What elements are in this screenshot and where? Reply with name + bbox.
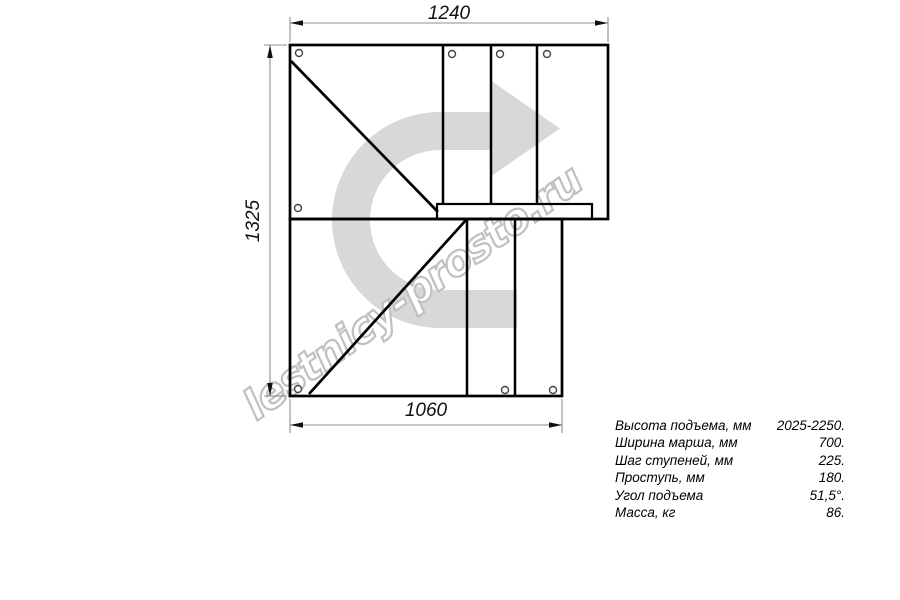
- mounting-holes: [295, 50, 557, 394]
- arrowhead: [290, 422, 303, 427]
- staircase-drawing-canvas: lestnicy-prosto.ru: [0, 0, 900, 600]
- arrowhead: [290, 20, 303, 25]
- spec-value: 225.: [819, 452, 845, 469]
- spec-row-mass: Масса, кг 86.: [615, 504, 845, 521]
- spec-value: 51,5°.: [810, 487, 845, 504]
- staircase-plan-outline: [290, 45, 608, 396]
- dimension-label-left: 1325: [243, 175, 265, 267]
- spec-value: 86.: [826, 504, 845, 521]
- spec-label: Шаг ступеней, мм: [615, 452, 733, 469]
- arrowhead: [595, 20, 608, 25]
- arrowhead: [267, 383, 273, 396]
- spec-label: Проступь, мм: [615, 469, 705, 486]
- spec-value: 180.: [819, 469, 845, 486]
- spec-label: Высота подъема, мм: [615, 417, 751, 434]
- landing-step-edge: [437, 204, 592, 219]
- upper-stringer-diagonal: [291, 61, 438, 212]
- dimension-label-bottom: 1060: [326, 400, 526, 422]
- dimension-label-top: 1240: [349, 3, 549, 25]
- spec-row-angle: Угол подъема 51,5°.: [615, 487, 845, 504]
- spec-label: Масса, кг: [615, 504, 675, 521]
- mounting-hole: [550, 387, 557, 394]
- mounting-hole: [296, 50, 303, 57]
- dimension-arrowheads: [267, 20, 608, 427]
- lower-stringer-diagonal: [309, 220, 466, 394]
- spec-value: 2025-2250.: [777, 417, 845, 434]
- spec-label: Угол подъема: [615, 487, 703, 504]
- spec-row-tread: Проступь, мм 180.: [615, 469, 845, 486]
- spec-label: Ширина марша, мм: [615, 434, 738, 451]
- spec-list: Высота подъема, мм 2025-2250. Ширина мар…: [615, 417, 845, 521]
- dimension-lines: [264, 17, 608, 433]
- mounting-hole: [544, 51, 551, 58]
- arrowhead: [267, 45, 273, 58]
- spec-row-height: Высота подъема, мм 2025-2250.: [615, 417, 845, 434]
- mounting-hole: [449, 51, 456, 58]
- spec-value: 700.: [819, 434, 845, 451]
- mounting-hole: [295, 386, 302, 393]
- arrowhead: [549, 422, 562, 427]
- spec-row-step-pitch: Шаг ступеней, мм 225.: [615, 452, 845, 469]
- mounting-hole: [295, 205, 302, 212]
- upper-flight-outline: [290, 45, 608, 219]
- mounting-hole: [497, 51, 504, 58]
- spec-row-flight-width: Ширина марша, мм 700.: [615, 434, 845, 451]
- mounting-hole: [502, 387, 509, 394]
